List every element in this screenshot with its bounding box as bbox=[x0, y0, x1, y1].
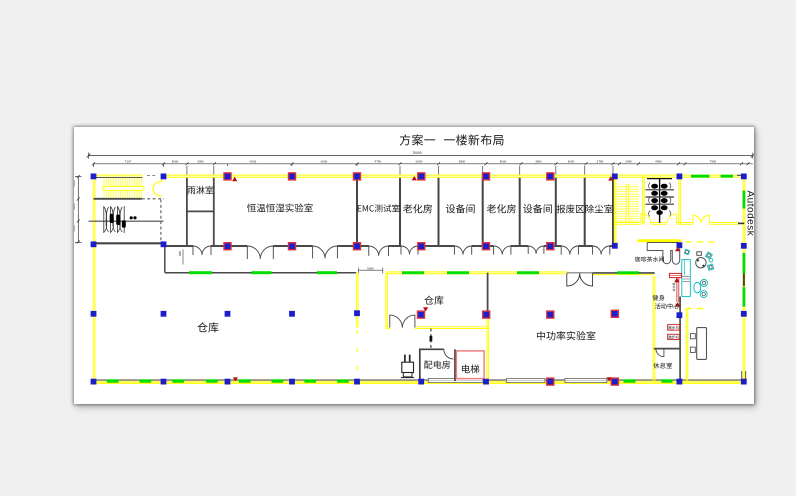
svg-text:中功率实验室: 中功率实验室 bbox=[536, 328, 596, 343]
svg-text:配电房: 配电房 bbox=[424, 358, 451, 371]
svg-text:6000: 6000 bbox=[321, 159, 328, 163]
svg-text:EMC测试室: EMC测试室 bbox=[357, 202, 401, 214]
svg-text:雨淋室: 雨淋室 bbox=[187, 184, 214, 197]
svg-text:休息室: 休息室 bbox=[653, 360, 673, 370]
svg-text:方案一 一楼新布局: 方案一 一楼新布局 bbox=[399, 132, 505, 149]
svg-text:3000: 3000 bbox=[197, 159, 204, 163]
svg-text:6000: 6000 bbox=[416, 159, 423, 163]
svg-text:恒温恒湿实验室: 恒温恒湿实验室 bbox=[247, 200, 314, 214]
svg-text:咖啡茶水间: 咖啡茶水间 bbox=[634, 254, 664, 263]
svg-text:报废区: 报废区 bbox=[556, 201, 585, 215]
svg-text:饮水机: 饮水机 bbox=[672, 282, 676, 291]
svg-text:3500: 3500 bbox=[535, 159, 542, 163]
svg-text:3600: 3600 bbox=[74, 180, 76, 187]
svg-text:老化房: 老化房 bbox=[403, 200, 433, 215]
svg-text:5000: 5000 bbox=[500, 159, 507, 163]
svg-text:设备间: 设备间 bbox=[446, 200, 476, 215]
svg-text:7500: 7500 bbox=[710, 159, 717, 163]
svg-text:跑步机: 跑步机 bbox=[668, 335, 679, 341]
svg-text:3500: 3500 bbox=[459, 159, 466, 163]
svg-text:3400: 3400 bbox=[74, 203, 76, 210]
svg-text:3500: 3500 bbox=[74, 225, 76, 232]
svg-text:3000: 3000 bbox=[568, 159, 575, 163]
svg-text:6002: 6002 bbox=[250, 159, 257, 163]
svg-text:5000: 5000 bbox=[367, 266, 374, 270]
svg-text:仓库: 仓库 bbox=[197, 320, 219, 336]
svg-text:76000: 76000 bbox=[412, 150, 422, 155]
svg-text:Autodesk: Autodesk bbox=[744, 191, 754, 237]
svg-text:4400: 4400 bbox=[655, 159, 662, 163]
svg-text:7167: 7167 bbox=[125, 159, 132, 163]
svg-text:除尘室: 除尘室 bbox=[585, 201, 614, 215]
svg-text:电梯: 电梯 bbox=[461, 362, 481, 376]
svg-text:设备间: 设备间 bbox=[523, 200, 553, 215]
svg-text:2750: 2750 bbox=[597, 159, 604, 163]
svg-text:4750: 4750 bbox=[375, 159, 382, 163]
svg-text:2040: 2040 bbox=[625, 159, 632, 163]
svg-text:活动中心: 活动中心 bbox=[655, 301, 680, 310]
svg-text:800: 800 bbox=[178, 251, 182, 256]
svg-text:仓库: 仓库 bbox=[424, 292, 444, 307]
svg-text:3000: 3000 bbox=[172, 159, 179, 163]
svg-text:老化房: 老化房 bbox=[487, 200, 517, 215]
svg-text:跑步机: 跑步机 bbox=[668, 325, 679, 331]
